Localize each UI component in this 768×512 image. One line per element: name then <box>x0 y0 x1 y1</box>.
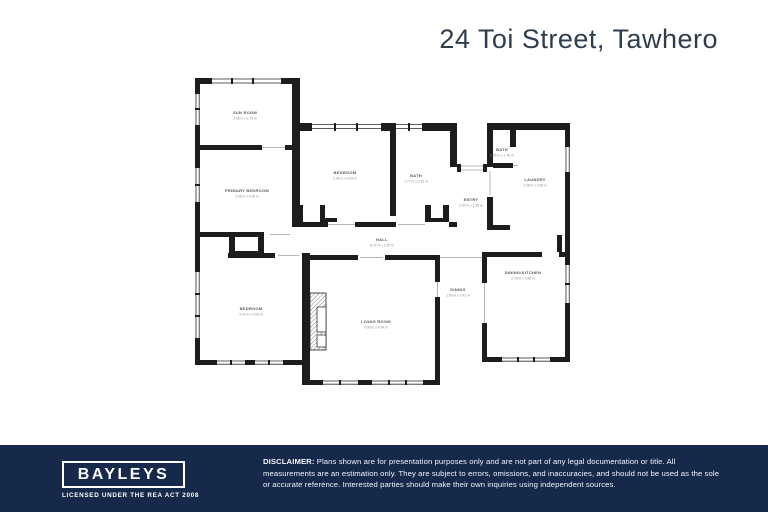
room-labels: SUN ROOM2.96 m x 1.79 mPRIMARY BEDROOM2.… <box>225 110 547 330</box>
room-dims: 4.96 m x 4.84 m <box>364 326 388 330</box>
room-dims: 8.47 m x 1.50 m <box>370 244 394 248</box>
room-label: LIVING ROOM <box>361 319 391 324</box>
page-title: 24 Toi Street, Tawhero <box>439 24 718 55</box>
room-dims: 2.96 m x 3.29 m <box>333 177 357 181</box>
walls <box>195 78 570 385</box>
disclaimer-label: DISCLAIMER: <box>263 457 315 466</box>
disclaimer-text: Plans shown are for presentation purpose… <box>263 457 719 489</box>
room-label: BEDROOM <box>334 170 357 175</box>
room-dims: 2.79 m x 4.85 m <box>511 277 535 281</box>
bayleys-logo-text: BAYLEYS <box>78 466 170 484</box>
room-label: SUN ROOM <box>233 110 257 115</box>
room-label: BEDROOM <box>240 306 263 311</box>
disclaimer: DISCLAIMER: Plans shown are for presenta… <box>263 456 721 491</box>
room-dims: 0.95 m x 1.45 m <box>490 154 514 158</box>
room-label: DINING/KITCHEN <box>505 270 541 275</box>
room-label: BATH <box>496 147 508 152</box>
room-dims: 2.96 m x 4.25 m <box>235 195 259 199</box>
room-label: LAUNDRY <box>524 177 545 182</box>
bayleys-logo: BAYLEYS LICENSED UNDER THE REA ACT 2008 <box>62 461 185 499</box>
room-label: HALL <box>376 237 388 242</box>
room-dims: 1.50 m x 2.41 m <box>446 294 470 298</box>
room-label: DINING <box>450 287 466 292</box>
room-dims: 2.96 m x 1.79 m <box>233 117 257 121</box>
room-label: ENTRY <box>464 197 479 202</box>
room-dims: 2.38 m x 3.25 m <box>523 184 547 188</box>
room-label: PRIMARY BEDROOM <box>225 188 269 193</box>
floor-plan: SUN ROOM2.96 m x 1.79 mPRIMARY BEDROOM2.… <box>185 75 580 395</box>
room-dims: 1.77 m x 3.29 m <box>404 180 428 184</box>
license-text: LICENSED UNDER THE REA ACT 2008 <box>62 492 185 499</box>
footer-bar: BAYLEYS LICENSED UNDER THE REA ACT 2008 … <box>0 445 768 512</box>
fireplace <box>310 293 326 350</box>
bayleys-logo-box: BAYLEYS <box>62 461 185 488</box>
room-dims: 4.04 m x 4.06 m <box>239 313 263 317</box>
room-label: BATH <box>410 173 422 178</box>
room-dims: 0.90 m x 1.98 m <box>459 204 483 208</box>
floor-plan-svg: SUN ROOM2.96 m x 1.79 mPRIMARY BEDROOM2.… <box>185 75 580 395</box>
